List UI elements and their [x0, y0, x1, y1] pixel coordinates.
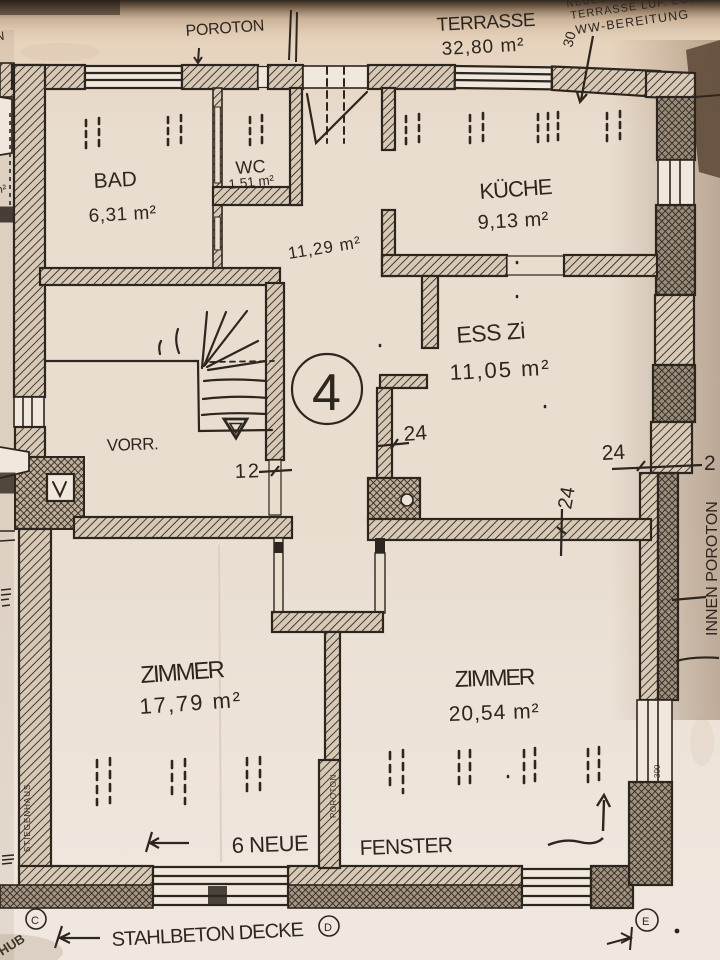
svg-text:VORR.: VORR.	[106, 434, 158, 455]
svg-text:ESS Zi: ESS Zi	[456, 317, 526, 348]
svg-text:4: 4	[312, 364, 341, 422]
svg-text:D: D	[324, 922, 332, 934]
svg-text:INNEN POROTON: INNEN POROTON	[704, 501, 720, 636]
svg-text:9,13 m²: 9,13 m²	[477, 208, 549, 234]
svg-text:24: 24	[554, 485, 580, 511]
svg-text:STIEGENHAUS: STIEGENHAUS	[23, 784, 32, 852]
svg-text:BAD: BAD	[93, 168, 137, 193]
svg-text:C: C	[31, 915, 39, 927]
svg-text:11,05 m²: 11,05 m²	[449, 355, 551, 385]
svg-text:KÜCHE: KÜCHE	[479, 174, 553, 204]
svg-text:E: E	[642, 916, 649, 928]
svg-text:2: 2	[704, 452, 716, 475]
svg-text:ZIMMER: ZIMMER	[454, 663, 535, 692]
svg-text:POROTON: POROTON	[329, 774, 338, 818]
svg-text:32,80 m²: 32,80 m²	[441, 35, 525, 60]
svg-text:20,54 m²: 20,54 m²	[448, 700, 540, 726]
svg-text:24: 24	[601, 441, 626, 465]
svg-text:FENSTER: FENSTER	[359, 834, 453, 860]
svg-text:300: 300	[653, 764, 662, 778]
svg-text:6 NEUE: 6 NEUE	[231, 830, 308, 858]
svg-text:6,31 m²: 6,31 m²	[88, 202, 157, 227]
svg-text:12: 12	[234, 460, 261, 483]
